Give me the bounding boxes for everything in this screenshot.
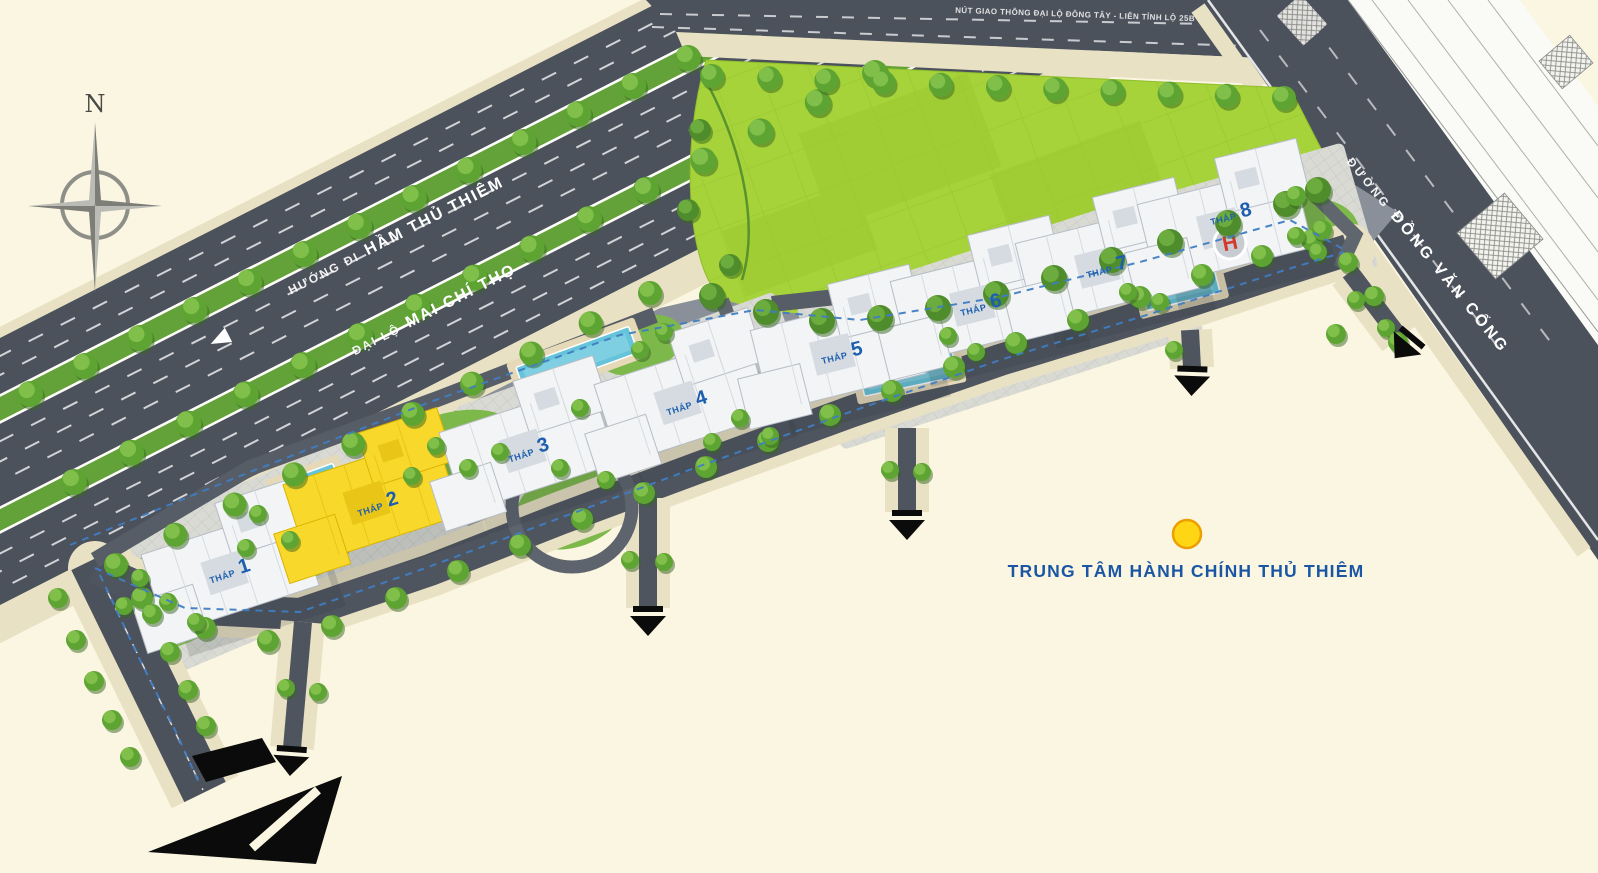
poi-title: TRUNG TÂM HÀNH CHÍNH THỦ THIÊM [1008,560,1365,581]
masterplan-canvas: H NÚT GIAO THÔNG ĐẠI LỘ ĐÔNG TÂY - LIÊN … [0,0,1598,873]
stub-road [1190,330,1192,368]
poi-marker [1173,520,1201,548]
site-plan-map: H NÚT GIAO THÔNG ĐẠI LỘ ĐÔNG TÂY - LIÊN … [0,0,1598,873]
compass-north-label: N [85,90,106,118]
